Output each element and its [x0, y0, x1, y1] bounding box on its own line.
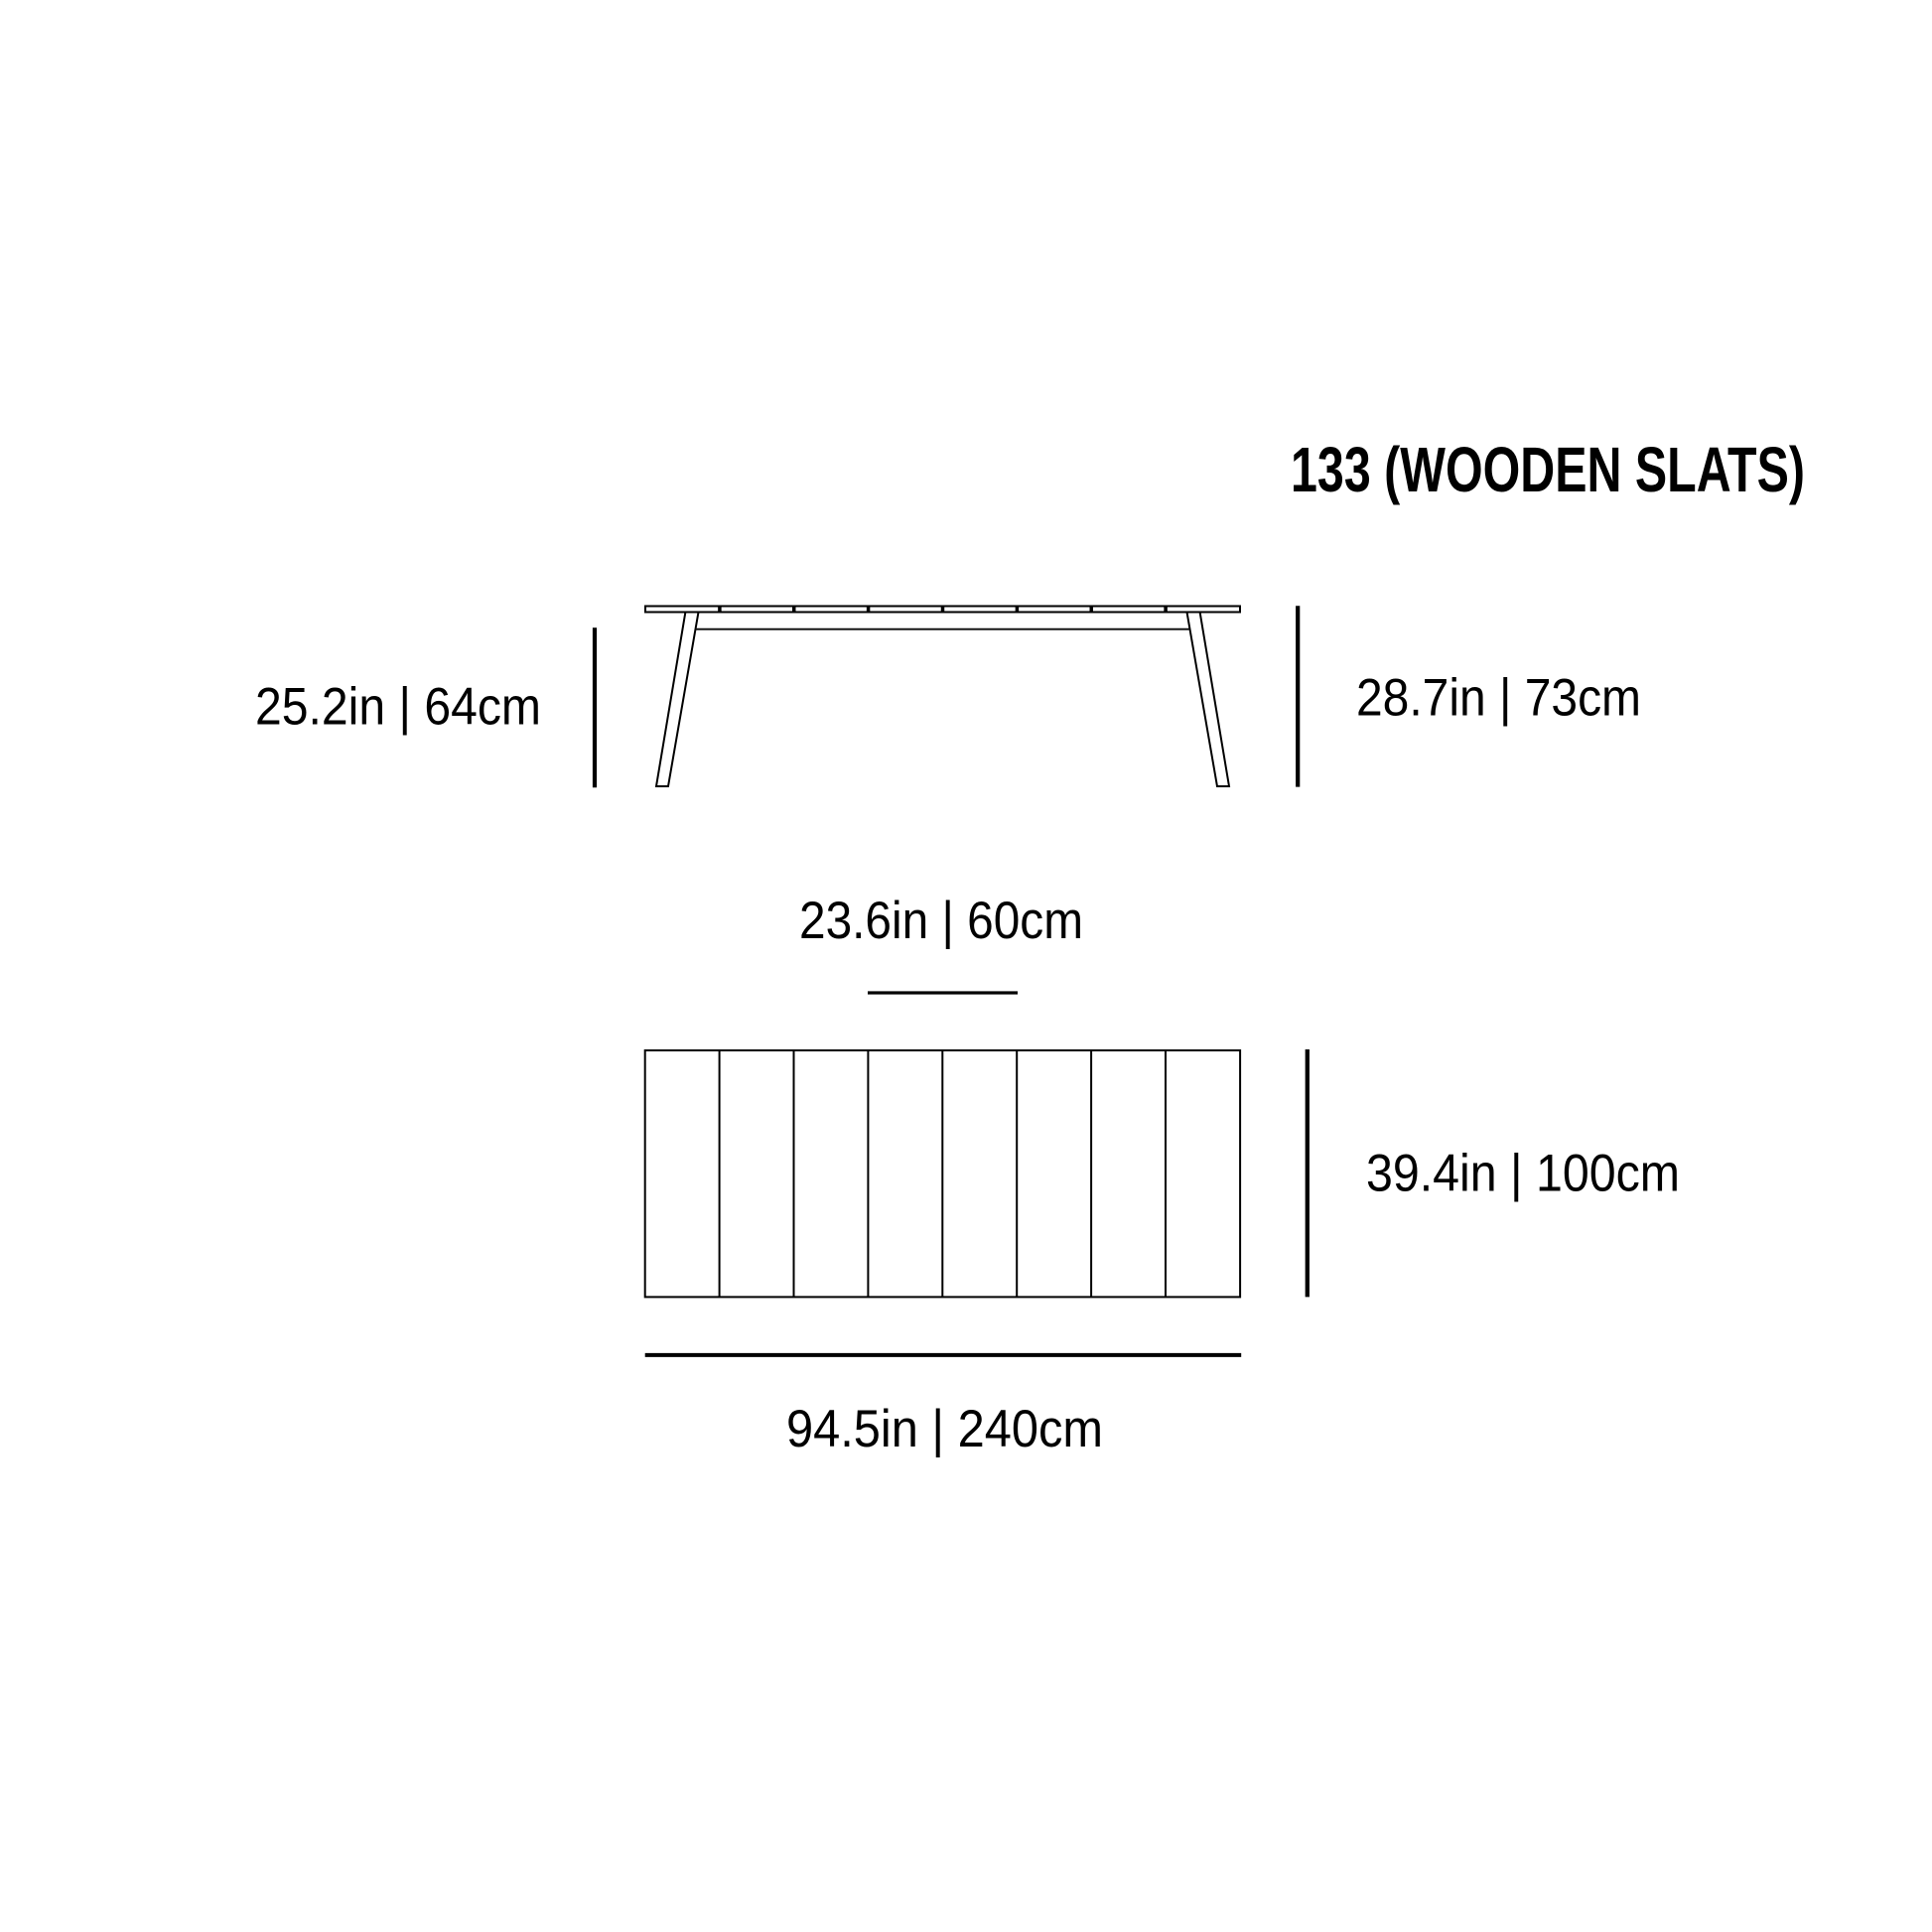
svg-text:39.4in | 100cm: 39.4in | 100cm — [1366, 1145, 1680, 1203]
svg-text:94.5in | 240cm: 94.5in | 240cm — [786, 1400, 1103, 1458]
svg-text:28.7in | 73cm: 28.7in | 73cm — [1356, 669, 1641, 728]
svg-text:133 (WOODEN SLATS): 133 (WOODEN SLATS) — [1291, 434, 1805, 505]
svg-text:25.2in | 64cm: 25.2in | 64cm — [255, 678, 541, 737]
svg-text:23.6in | 60cm: 23.6in | 60cm — [799, 892, 1083, 950]
